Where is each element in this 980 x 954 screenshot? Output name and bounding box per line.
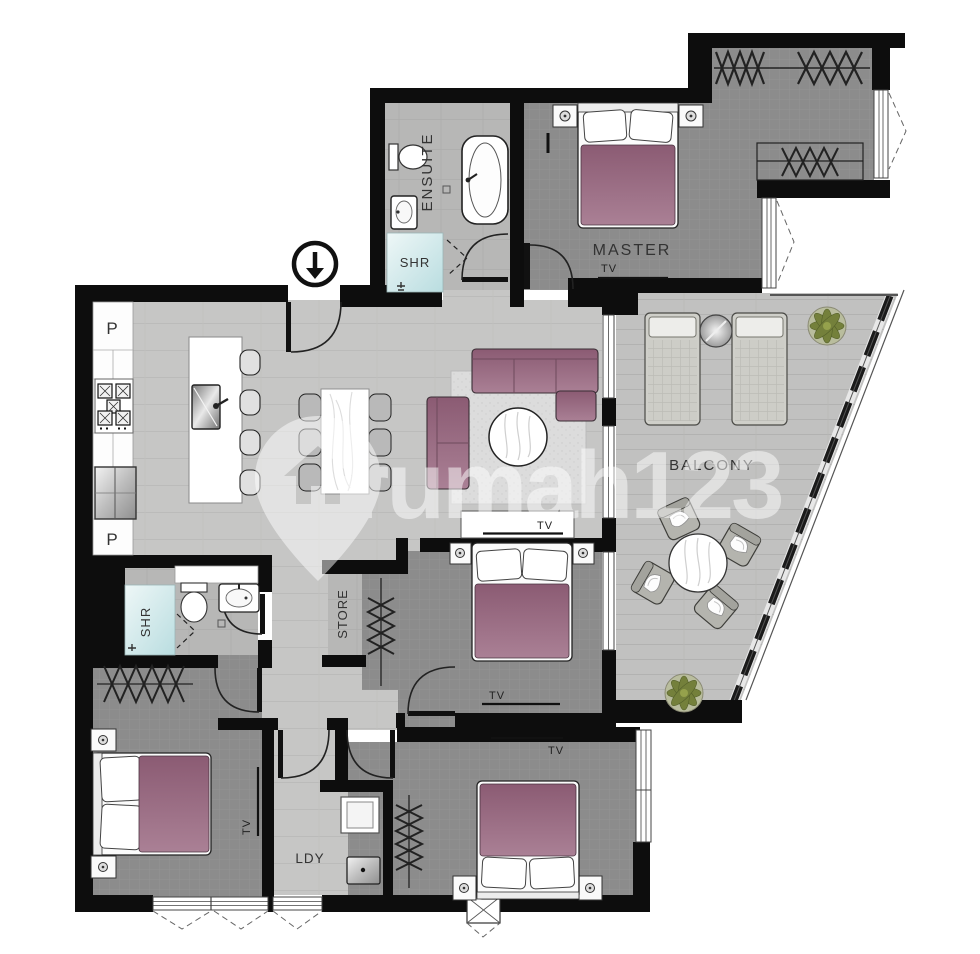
- pantry-label-bottom: P: [106, 530, 117, 549]
- bed: [93, 753, 211, 855]
- wall: [322, 655, 366, 667]
- laundry-bottom-window: [273, 897, 322, 929]
- pillow: [629, 109, 673, 143]
- wall: [370, 88, 700, 103]
- chaise: [556, 391, 596, 421]
- wall: [75, 285, 288, 302]
- sink: [219, 584, 259, 612]
- chair: [369, 394, 391, 421]
- wall: [510, 88, 524, 307]
- room-label-shr-ensuite: SHR: [400, 255, 430, 270]
- kitchen-island: [189, 337, 242, 503]
- duvet: [480, 784, 576, 856]
- sun-lounger: [645, 313, 700, 425]
- sun-lounger: [732, 313, 787, 425]
- master-right-window: [762, 198, 794, 288]
- nightstand: [679, 105, 703, 127]
- bed: [472, 543, 572, 661]
- pillow: [481, 857, 527, 889]
- laundry-sink: [341, 797, 379, 833]
- room-label-laundry: LDY: [295, 851, 324, 866]
- pillow: [529, 857, 575, 889]
- wall: [320, 780, 393, 792]
- wall: [258, 640, 272, 668]
- bedroom3-bottom-window: [153, 897, 268, 929]
- pillow: [100, 804, 142, 850]
- nightstand: [553, 105, 577, 127]
- plant: [808, 307, 846, 345]
- pillow: [522, 549, 568, 582]
- stool: [240, 430, 260, 455]
- wall: [602, 398, 616, 426]
- headboard: [578, 103, 678, 112]
- cooktop: [95, 379, 133, 433]
- master-bed: [578, 103, 678, 228]
- bathtub: [462, 136, 508, 224]
- wall: [383, 792, 393, 895]
- wall: [757, 180, 890, 198]
- fridge: [95, 467, 136, 519]
- duvet: [475, 584, 569, 658]
- wall: [93, 555, 125, 668]
- tv-label-bedroom2: TV: [489, 690, 505, 702]
- wall: [75, 895, 153, 912]
- toilet: [181, 583, 207, 622]
- wall: [396, 713, 405, 728]
- pillow: [476, 549, 522, 582]
- wall: [322, 895, 467, 912]
- pillow: [100, 756, 142, 802]
- wall: [218, 718, 278, 730]
- vanity-counter: [175, 566, 258, 583]
- outdoor-table: [669, 534, 727, 592]
- nightstand: [579, 876, 602, 900]
- stool: [240, 350, 260, 375]
- wall: [370, 88, 385, 302]
- room-label-shr-bath2: SHR: [138, 607, 153, 637]
- nightstand: [573, 543, 594, 564]
- room-label-master: MASTER: [593, 242, 672, 259]
- wall: [397, 727, 640, 742]
- pillow: [583, 110, 627, 143]
- sink: [391, 196, 417, 229]
- duvet: [581, 145, 675, 225]
- wall: [262, 718, 274, 897]
- nightstand: [91, 729, 116, 751]
- headboard: [477, 892, 579, 899]
- floor-plan-canvas: TV TV: [0, 0, 980, 954]
- wall: [455, 713, 616, 728]
- plant: [665, 674, 703, 712]
- pantry-label-top: P: [106, 319, 117, 338]
- bedroom4-right-window: [636, 730, 651, 842]
- nightstand: [450, 543, 471, 564]
- bedroom2-balcony-window: [603, 552, 614, 650]
- duvet: [139, 756, 209, 852]
- wardrobe-right-window: [874, 90, 906, 178]
- wall: [335, 727, 348, 782]
- bed: [477, 781, 579, 899]
- wall: [602, 290, 638, 315]
- wall: [75, 285, 93, 910]
- tv-label-master: TV: [601, 263, 617, 275]
- nightstand: [453, 876, 476, 900]
- wall: [258, 555, 272, 592]
- wall: [872, 33, 890, 90]
- wall: [268, 895, 273, 912]
- room-label-store: STORE: [335, 589, 350, 639]
- wall: [93, 655, 218, 668]
- room-label-ensuite: ENSUITE: [419, 132, 436, 211]
- stool: [240, 390, 260, 415]
- bedroom4-bottom-window: [467, 897, 500, 937]
- floor-plan: TV TV: [0, 0, 980, 954]
- nightstand: [91, 856, 116, 878]
- watermark-text: rumah123: [352, 432, 782, 539]
- washer: [347, 857, 380, 884]
- wall: [633, 842, 650, 910]
- entry-arrow-icon: [294, 243, 336, 285]
- tv-label-bedroom4: TV: [548, 745, 564, 757]
- tv-label-bedroom3: TV: [241, 819, 253, 835]
